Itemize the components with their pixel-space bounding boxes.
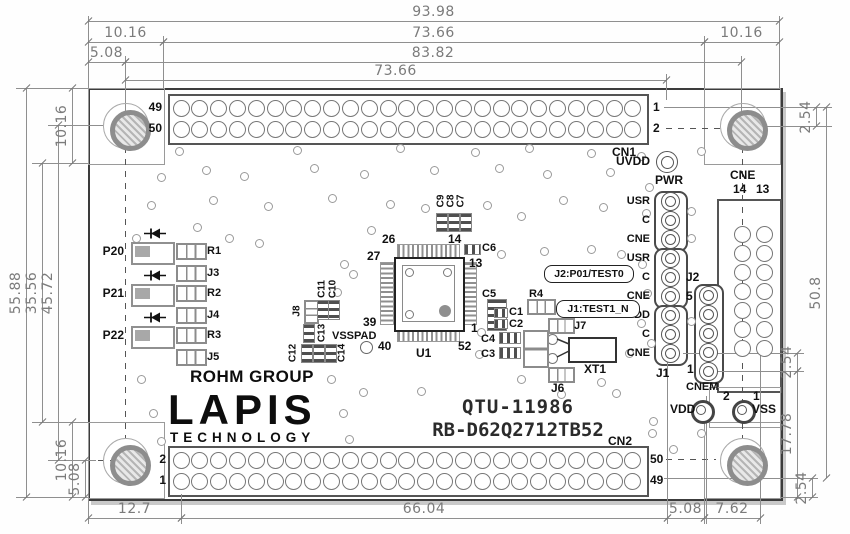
- dimension-line: [88, 62, 125, 63]
- cne-pin: [756, 226, 773, 243]
- dimension-line: [85, 460, 86, 497]
- u1-pin52: 52: [458, 339, 471, 353]
- dimension-value: 5.08: [67, 462, 83, 495]
- hdr-pin-label-c1: C: [614, 214, 650, 226]
- via: [202, 166, 211, 175]
- cn1-pin: [417, 100, 434, 117]
- note-j1-function: J1:TEST1_N: [556, 300, 640, 318]
- cn1-pin: [587, 100, 604, 117]
- r3-resistor: [176, 327, 207, 344]
- cn2-pin: [267, 452, 284, 469]
- cn1-pin: [493, 121, 510, 138]
- cn1-pin2-dash: [666, 128, 726, 129]
- uvdd-label: UVDD: [610, 154, 650, 168]
- dimension-value: 12.7: [88, 501, 181, 517]
- via: [175, 147, 184, 156]
- via: [359, 388, 368, 397]
- cn1-pin: [248, 100, 265, 117]
- via: [225, 234, 234, 243]
- dimension-line: [826, 107, 827, 478]
- header-pin-inner: [665, 291, 676, 302]
- dimension-line: [88, 21, 779, 22]
- extension-line: [760, 355, 761, 524]
- j2-refdes: J2: [686, 270, 699, 284]
- u1-pins-top: [397, 244, 460, 258]
- cn2-pin: [342, 473, 359, 490]
- cn2-pin1-label: 1: [144, 473, 166, 487]
- dimension-value: 2.54: [779, 345, 795, 378]
- via: [543, 170, 552, 179]
- cn2-pin: [568, 452, 585, 469]
- p21-led: [131, 284, 175, 307]
- cn2-pin50-dash: [666, 459, 716, 460]
- cn2-pin: [285, 473, 302, 490]
- cn1-pin2-label: 2: [653, 121, 660, 135]
- cne-pin: [756, 283, 773, 300]
- cn1-pin1-label: 1: [653, 100, 660, 114]
- via: [687, 317, 696, 326]
- u1-corner-dot-tr: [443, 268, 452, 277]
- cn2-pin: [323, 452, 340, 469]
- dimension-value: 50.8: [808, 276, 824, 309]
- via: [483, 201, 492, 210]
- via: [587, 245, 596, 254]
- cne-pin: [734, 245, 751, 262]
- cn2-pin: [398, 452, 415, 469]
- logo-lapis: LAPIS: [168, 386, 317, 434]
- cn2-pin: [530, 452, 547, 469]
- vdd-label: VDD: [670, 402, 695, 416]
- logo-technology: TECHNOLOGY: [170, 430, 315, 445]
- dimension-value: 7.62: [704, 501, 760, 517]
- note-j2-function: J2:P01/TEST0: [544, 265, 634, 283]
- c10-cap: [328, 300, 340, 320]
- xt1-body: [568, 337, 617, 363]
- c13-label: C13: [317, 324, 328, 342]
- cn1-pin: [493, 100, 510, 117]
- cn2-pin: [342, 452, 359, 469]
- u1-corner-dot-bl: [405, 310, 414, 319]
- via: [340, 260, 349, 269]
- via: [386, 200, 395, 209]
- cn1-pin: [248, 121, 265, 138]
- cn2-pin: [587, 452, 604, 469]
- hdr-pin-label-cne3: CNE: [614, 347, 650, 359]
- via: [417, 387, 426, 396]
- dimension-value: 73.66: [125, 63, 666, 79]
- dimension-value: 2.54: [798, 100, 814, 133]
- p22-label: P22: [98, 328, 124, 342]
- cn1-pin: [549, 100, 566, 117]
- cn1-pin: [361, 121, 378, 138]
- cn1-pin: [342, 121, 359, 138]
- via: [645, 183, 654, 192]
- header-pin-inner: [665, 215, 676, 226]
- cn1-pin: [173, 100, 190, 117]
- dimension-value: 83.82: [125, 45, 741, 61]
- c9-cap: [436, 213, 448, 232]
- via: [157, 437, 166, 446]
- r2-label: R2: [207, 287, 221, 299]
- cn1-pin: [511, 121, 528, 138]
- c12-cap: [301, 344, 313, 363]
- cn2-pin: [304, 473, 321, 490]
- cn1-pin: [436, 100, 453, 117]
- c5-label: C5: [482, 288, 496, 300]
- dimension-line: [58, 125, 59, 460]
- board-part-number: QTU-11986: [398, 396, 638, 418]
- u1-pin14: 14: [448, 232, 461, 246]
- c7-label: C7: [456, 195, 467, 208]
- c4-label: C4: [481, 333, 495, 345]
- cn1-pin: [173, 121, 190, 138]
- cn1-pin: [530, 100, 547, 117]
- j4-jumper: [176, 307, 207, 324]
- via: [421, 204, 430, 213]
- cnem-pin-inner: [703, 309, 714, 320]
- cn1-pin: [267, 121, 284, 138]
- cn1-pin: [587, 121, 604, 138]
- c1-label: C1: [509, 306, 523, 318]
- cn1-pin: [229, 100, 246, 117]
- dimension-line: [163, 42, 704, 43]
- cn2-pin: [229, 452, 246, 469]
- j3-label: J3: [207, 267, 219, 279]
- c14-label: C14: [337, 344, 348, 362]
- cne-pin: [756, 340, 773, 357]
- extension-line: [758, 126, 832, 127]
- via: [517, 375, 526, 384]
- r3-label: R3: [207, 329, 221, 341]
- cn1-pin: [267, 100, 284, 117]
- r2-resistor: [176, 285, 207, 302]
- dimension-value: 55.88: [8, 271, 24, 314]
- u1-pins-left: [380, 262, 394, 325]
- cn1-pin: [417, 121, 434, 138]
- cn2-pin: [474, 473, 491, 490]
- p21-label: P21: [98, 286, 124, 300]
- cn1-pin: [342, 100, 359, 117]
- dimension-line: [181, 518, 667, 519]
- cne-pin13-label: 13: [756, 182, 769, 196]
- via: [687, 234, 696, 243]
- cn2-pin: [530, 473, 547, 490]
- c11-label: C11: [317, 280, 328, 298]
- via: [430, 166, 439, 175]
- vsspad-hole: [360, 341, 373, 354]
- header-pin-inner: [665, 310, 676, 321]
- cn2-pin: [361, 452, 378, 469]
- via: [669, 445, 678, 454]
- cn1-pin: [436, 121, 453, 138]
- c3-cap: [499, 347, 521, 359]
- cn2-pin: [191, 473, 208, 490]
- r1-label: R1: [207, 245, 221, 257]
- via: [697, 147, 706, 156]
- c6-cap: [464, 244, 481, 255]
- cn1-pin: [398, 121, 415, 138]
- c14-cap: [325, 344, 337, 363]
- via: [293, 146, 302, 155]
- j7-jumper: [548, 318, 575, 334]
- cnem-pin-inner: [703, 347, 714, 358]
- cn2-pin: [549, 452, 566, 469]
- dimension-value: 66.04: [181, 501, 667, 517]
- logo-rohm-group: ROHM GROUP: [190, 367, 314, 387]
- c7-cap: [460, 213, 472, 232]
- via: [137, 375, 146, 384]
- via: [697, 429, 706, 438]
- cne-pin: [756, 245, 773, 262]
- cn1-pin: [285, 121, 302, 138]
- p20-label: P20: [98, 244, 124, 258]
- cn1-pin: [530, 121, 547, 138]
- cn2-pin: [606, 452, 623, 469]
- hdr-pin-label-usr2: USR: [614, 252, 650, 264]
- cn2-pin: [417, 473, 434, 490]
- c10-label: C10: [328, 280, 339, 298]
- c3-label: C3: [481, 348, 495, 360]
- r1-resistor: [176, 243, 207, 260]
- j3-jumper: [176, 265, 207, 282]
- cn2-pin: [417, 452, 434, 469]
- cn2-pin: [455, 452, 472, 469]
- cne-pin: [756, 321, 773, 338]
- cn1-pin: [624, 100, 641, 117]
- via: [255, 239, 264, 248]
- extension-line: [667, 362, 668, 524]
- cn1-pin: [568, 100, 585, 117]
- cn1-pin: [549, 121, 566, 138]
- cn2-pin: [173, 452, 190, 469]
- vsspad-label: VSSPAD: [332, 330, 376, 342]
- j6-label: J6: [551, 381, 564, 395]
- cne-pin: [734, 302, 751, 319]
- r4-resistor: [527, 299, 556, 315]
- cn2-pin: [285, 452, 302, 469]
- cne-pin: [734, 340, 751, 357]
- cn1-pin: [304, 100, 321, 117]
- p20-diode-icon: [141, 227, 167, 240]
- cn2-pin: [267, 473, 284, 490]
- cnem-pin-inner: [703, 366, 714, 377]
- cn2-pin: [606, 473, 623, 490]
- cn1-pin: [361, 100, 378, 117]
- r4-label: R4: [529, 288, 543, 300]
- u1-pin1-dot: [439, 305, 451, 317]
- via: [310, 164, 319, 173]
- vss-label: VSS: [752, 402, 776, 416]
- cn2-pin: [455, 473, 472, 490]
- cn2-pin: [361, 473, 378, 490]
- dimension-line: [704, 518, 760, 519]
- cne-refdes: CNE: [730, 168, 755, 182]
- pcb-dimension-drawing: 49 50 1 2 CN1 2 1 50 49 CN2 UVDD PWR USR…: [0, 0, 850, 534]
- dimension-value: 45.72: [40, 271, 56, 314]
- cnem-pin5-label: 5: [686, 289, 693, 303]
- extension-line: [779, 16, 780, 88]
- via: [240, 172, 249, 181]
- j1-refdes: J1: [656, 366, 669, 380]
- via: [149, 409, 158, 418]
- via: [367, 226, 376, 235]
- dimension-line: [72, 88, 73, 163]
- dimension-value: 10.16: [88, 25, 163, 41]
- cn2-pin2-label: 2: [144, 452, 166, 466]
- cn2-pin: [624, 473, 641, 490]
- p21-led-cell: [135, 288, 150, 299]
- u1-pin40: 40: [378, 339, 391, 353]
- via: [264, 202, 273, 211]
- via: [599, 203, 608, 212]
- dimension-line: [667, 518, 704, 519]
- via: [525, 144, 534, 153]
- cn1-pin: [455, 100, 472, 117]
- cn2-pin: [248, 473, 265, 490]
- via: [345, 435, 354, 444]
- c1-cap: [494, 308, 508, 318]
- cn1-pin: [474, 100, 491, 117]
- hdr-pin-label-usr1: USR: [614, 195, 650, 207]
- cn1-pin: [380, 121, 397, 138]
- cn1-pin: [380, 100, 397, 117]
- via: [517, 212, 526, 221]
- cn2-pin: [511, 473, 528, 490]
- via: [540, 247, 549, 256]
- dimension-value: 10.16: [54, 104, 70, 147]
- cn1-pin: [511, 100, 528, 117]
- via: [649, 417, 658, 426]
- cn1-pin: [210, 121, 227, 138]
- cn2-pin: [549, 473, 566, 490]
- cn2-pin: [229, 473, 246, 490]
- j7-label: J7: [574, 320, 586, 332]
- u1-refdes: U1: [416, 346, 431, 360]
- header-pin-inner: [665, 272, 676, 283]
- p22-led: [131, 326, 175, 349]
- dimension-value: 2.54: [794, 471, 810, 504]
- via: [648, 429, 657, 438]
- cn2-pin: [474, 452, 491, 469]
- u1-pin13: 13: [469, 256, 482, 270]
- dimension-value: 10.16: [704, 25, 779, 41]
- header-pin-inner: [665, 348, 676, 359]
- j4-label: J4: [207, 309, 219, 321]
- cn1-pin: [323, 100, 340, 117]
- cn2-pin: [493, 473, 510, 490]
- dimension-value: 73.66: [163, 25, 704, 41]
- u1-pin39: 39: [363, 315, 376, 329]
- header-pin-inner: [665, 253, 676, 264]
- cn1-pin: [304, 121, 321, 138]
- via: [328, 194, 337, 203]
- dimension-value: 17.78: [779, 413, 795, 456]
- mounting-hole-pad: [727, 110, 768, 151]
- vss-pin-number: 1: [753, 389, 760, 403]
- header-pin-inner: [665, 234, 676, 245]
- cnem-pin-inner: [703, 328, 714, 339]
- cn2-pin: [624, 452, 641, 469]
- cn2-pin49-label: 49: [650, 473, 663, 487]
- via: [497, 250, 506, 259]
- c13-cap: [303, 324, 315, 343]
- c12b-cap: [313, 344, 325, 363]
- cne-pin: [734, 283, 751, 300]
- hdr-pin-label-c3: C: [614, 328, 650, 340]
- cn1-pin: [606, 121, 623, 138]
- cne-pin: [756, 264, 773, 281]
- dimension-value: 93.98: [88, 4, 779, 20]
- c8-cap: [448, 213, 460, 232]
- cn2-pin: [380, 473, 397, 490]
- dual-pad-component: [523, 330, 549, 368]
- cn1-pin: [191, 121, 208, 138]
- cn1-pin50-label: 50: [140, 121, 162, 135]
- cn1-pin: [606, 100, 623, 117]
- via: [396, 144, 405, 153]
- c2-cap: [494, 319, 508, 329]
- cn1-pin: [474, 121, 491, 138]
- cne-pin14-label: 14: [733, 182, 746, 196]
- cn2-pin50-label: 50: [650, 452, 663, 466]
- uvdd-pad-inner: [661, 156, 674, 169]
- cn2-pin: [398, 473, 415, 490]
- vss-pad-inner: [737, 405, 747, 415]
- via: [147, 201, 156, 210]
- cn2-pin: [493, 452, 510, 469]
- header-pin-inner: [665, 329, 676, 340]
- via: [597, 378, 606, 387]
- p20-led: [131, 242, 175, 265]
- cn2-pin: [191, 452, 208, 469]
- cn1-pin: [624, 121, 641, 138]
- hdr-pin-label-cne1: CNE: [614, 233, 650, 245]
- via: [327, 375, 336, 384]
- p21-diode-icon: [141, 269, 167, 282]
- cn1-pin: [323, 121, 340, 138]
- cn1-pin: [210, 100, 227, 117]
- u1-pin1: 1: [471, 321, 478, 335]
- dimension-line: [88, 42, 163, 43]
- cn2-pin: [436, 452, 453, 469]
- cnem-pin1-label: 1: [687, 362, 694, 376]
- mounting-hole-pad: [727, 445, 768, 486]
- xt1-label: XT1: [584, 362, 606, 376]
- cn1-pin: [285, 100, 302, 117]
- dimension-value: 5.08: [88, 45, 125, 61]
- p22-led-cell: [135, 330, 150, 341]
- cn1-pin: [568, 121, 585, 138]
- via: [587, 149, 596, 158]
- cn2-pin: [380, 452, 397, 469]
- cn2-pin: [568, 473, 585, 490]
- via: [157, 173, 166, 182]
- cnem-refdes: CNEM: [686, 381, 718, 393]
- via: [687, 207, 696, 216]
- via: [209, 196, 218, 205]
- dimension-line: [88, 518, 181, 519]
- header-pin-inner: [665, 196, 676, 207]
- via: [495, 164, 504, 173]
- cn1-pin: [191, 100, 208, 117]
- via: [559, 196, 568, 205]
- cn2-pin: [210, 473, 227, 490]
- dimension-value: 35.56: [24, 271, 40, 314]
- u1-pin27: 27: [367, 249, 380, 263]
- p22-diode-icon: [141, 311, 167, 324]
- dimension-line: [704, 42, 779, 43]
- cn2-pin: [304, 452, 321, 469]
